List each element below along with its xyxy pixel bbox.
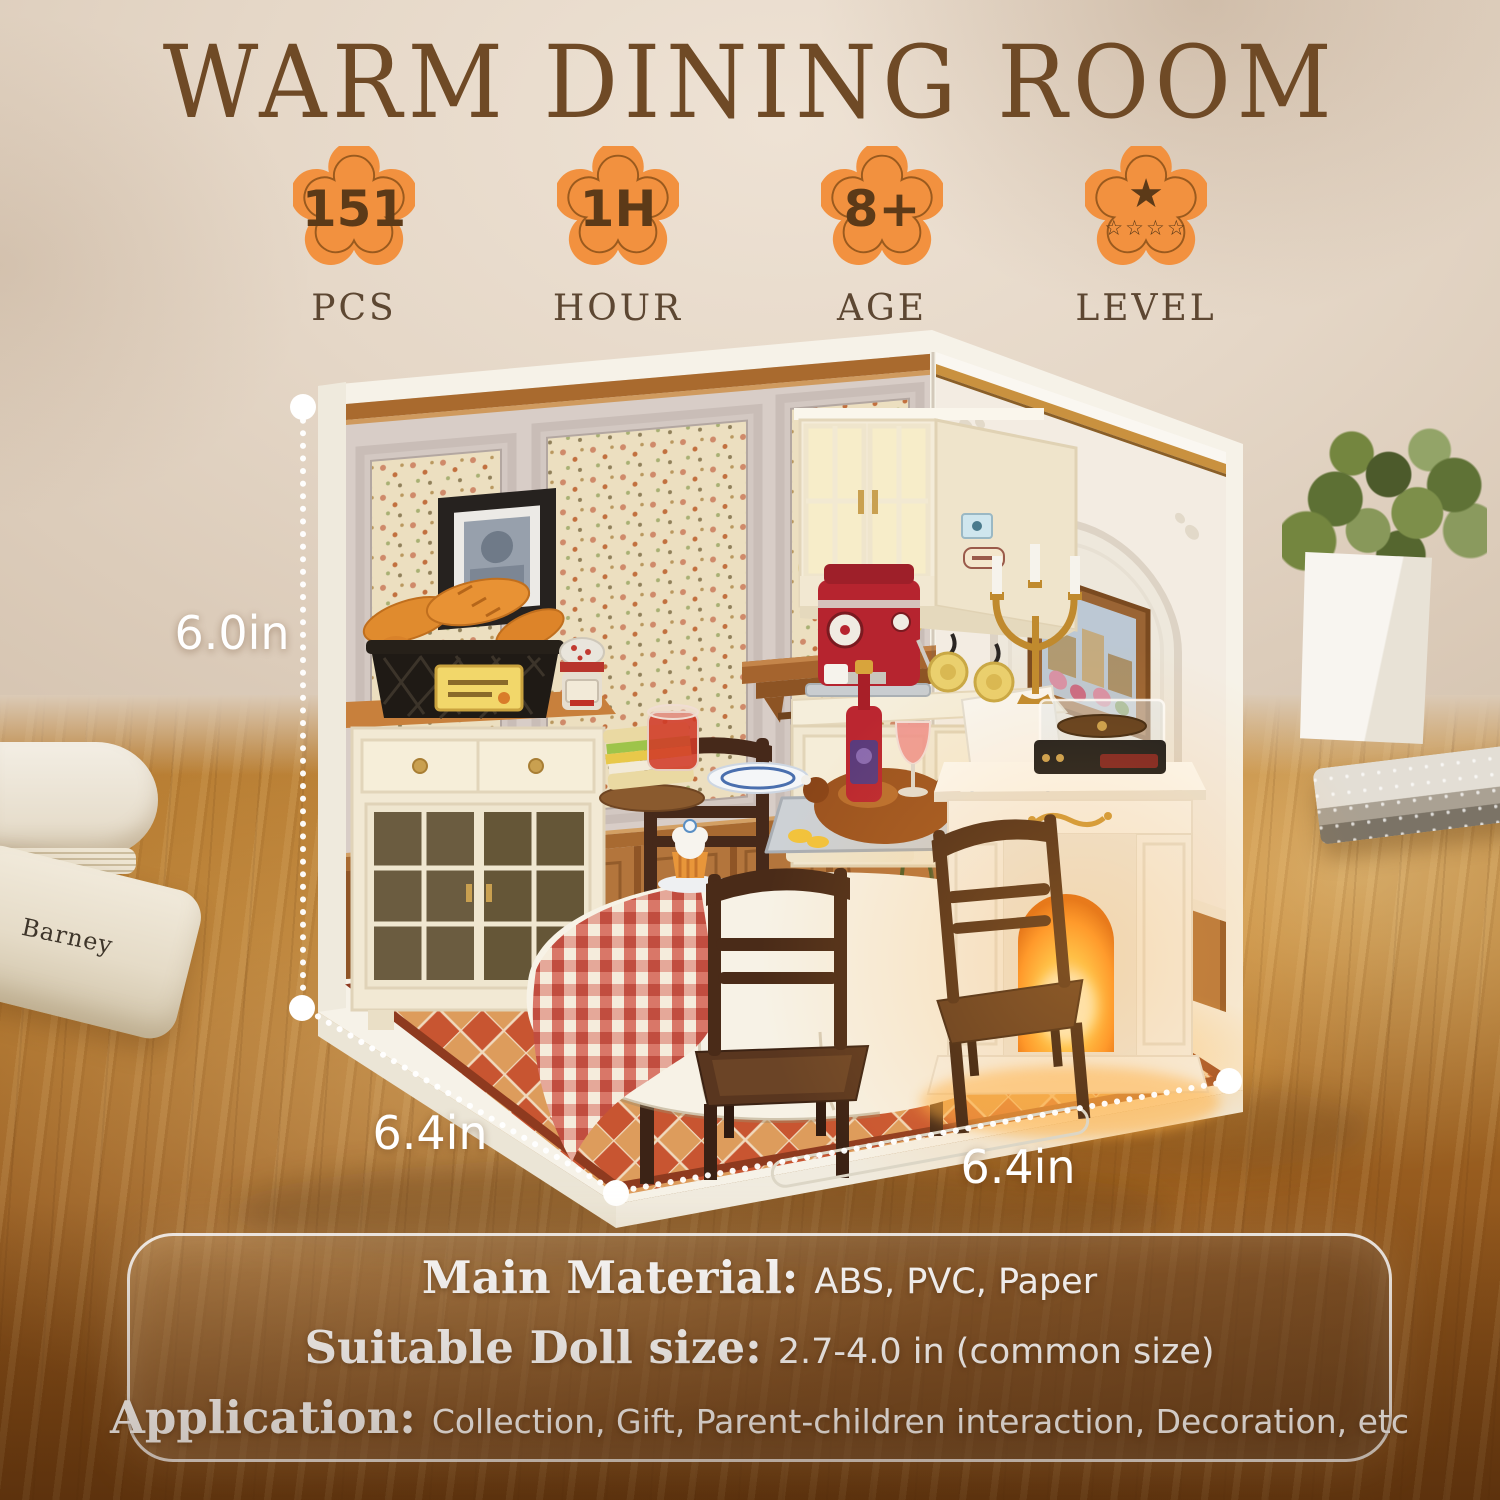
product-infographic: Barney [0, 0, 1500, 1500]
spec-row-material: Main Material: ABS, PVC, Paper [422, 1251, 1097, 1304]
doll-size-label: Suitable Doll size: [304, 1321, 761, 1374]
badge-level-label: LEVEL [1075, 288, 1216, 329]
page-title: WARM DINING ROOM [53, 24, 1448, 141]
badge-pieces: 151 PCS [281, 146, 427, 329]
application-value: Collection, Gift, Parent-children intera… [432, 1402, 1409, 1441]
level-stars-outline-icon: ☆☆☆☆ [1104, 216, 1187, 241]
spec-panel: Main Material: ABS, PVC, Paper Suitable … [127, 1233, 1392, 1462]
dimension-depth-label: 6.4in [344, 1106, 516, 1160]
level-star-filled-icon: ★ [1128, 174, 1164, 214]
badge-level: ★ ☆☆☆☆ LEVEL [1073, 146, 1219, 329]
badge-age-value: 8+ [821, 146, 943, 268]
feature-badges: 151 PCS 1H HOUR 8+ AGE [0, 146, 1500, 329]
application-label: Application: [110, 1391, 416, 1444]
material-label: Main Material: [422, 1251, 799, 1304]
badge-pieces-value: 151 [293, 146, 415, 268]
badge-age-label: AGE [837, 288, 927, 329]
badge-hours-label: HOUR [553, 288, 683, 329]
dimension-height-label: 6.0in [148, 606, 316, 660]
material-value: ABS, PVC, Paper [814, 1262, 1097, 1302]
spec-row-doll-size: Suitable Doll size: 2.7-4.0 in (common s… [304, 1321, 1214, 1374]
dimension-width-label: 6.4in [930, 1140, 1106, 1194]
badge-hours-value: 1H [557, 146, 679, 268]
badge-pieces-label: PCS [311, 288, 396, 329]
spec-row-application: Application: Collection, Gift, Parent-ch… [110, 1391, 1409, 1444]
badge-hours: 1H HOUR [545, 146, 691, 329]
doll-size-value: 2.7-4.0 in (common size) [778, 1332, 1215, 1372]
badge-age: 8+ AGE [809, 146, 955, 329]
jam-jar [560, 638, 604, 710]
